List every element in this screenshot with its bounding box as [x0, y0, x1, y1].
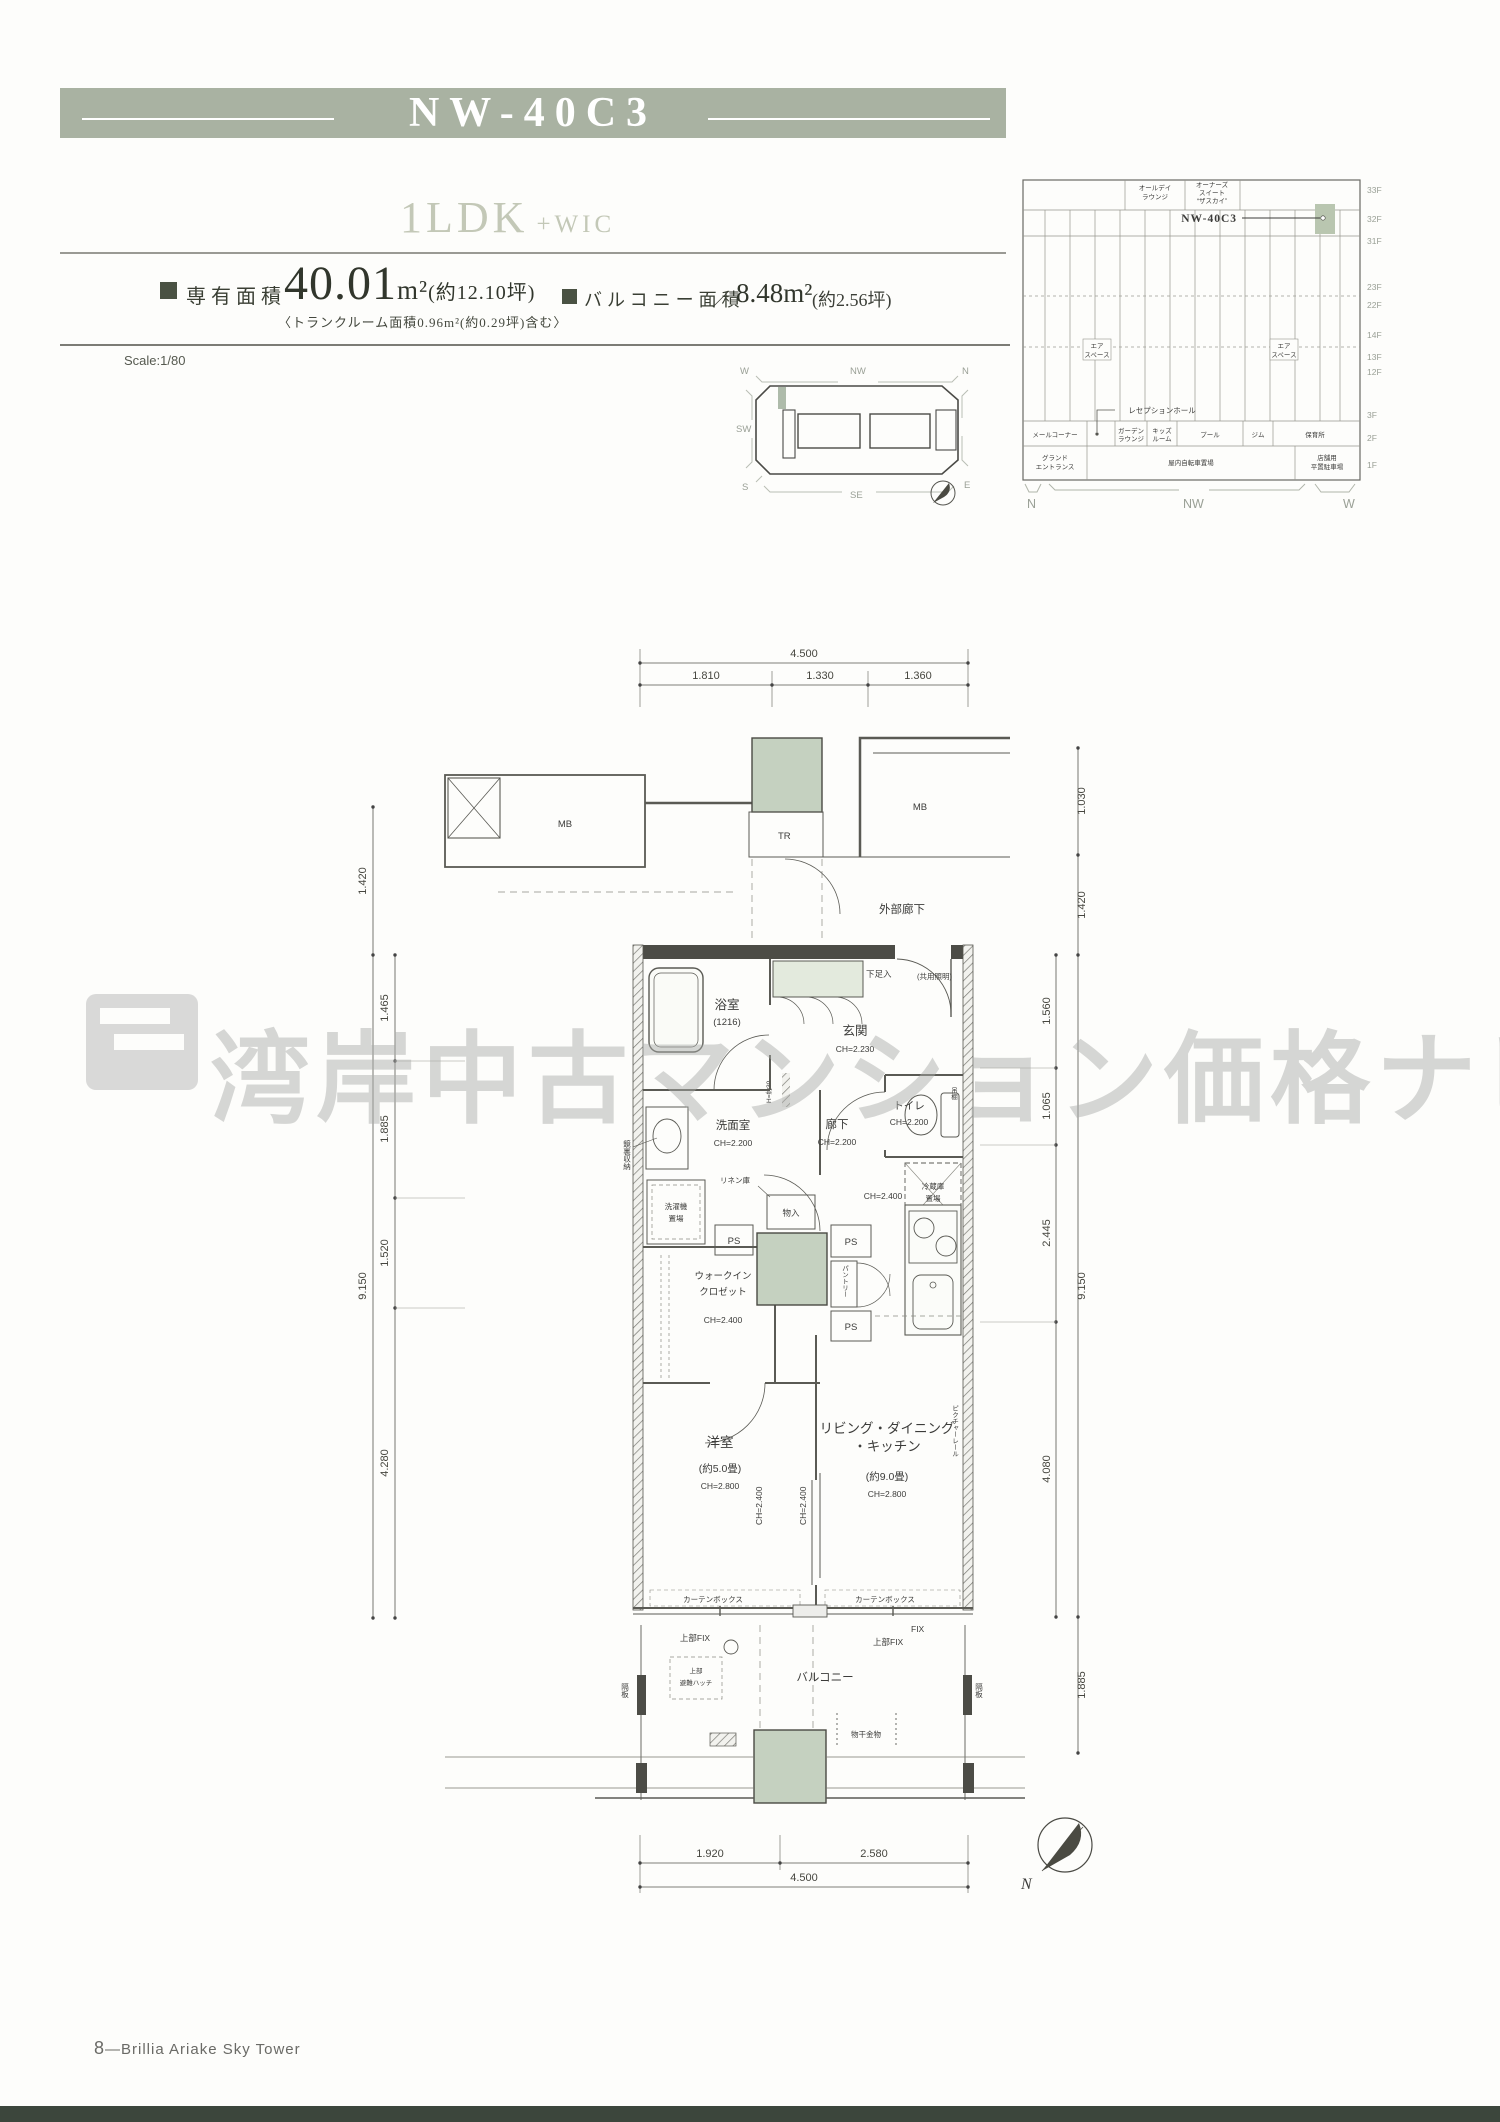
shoe-label: 下足入: [866, 969, 892, 979]
svg-text:オールデイ: オールデイ: [1139, 183, 1172, 192]
divider-spec: [60, 344, 1010, 346]
mirror-storage-label: 鏡裏収納: [622, 1139, 631, 1172]
tr-label: TR: [778, 831, 791, 842]
svg-text:1F: 1F: [1367, 460, 1377, 470]
svg-text:保育所: 保育所: [1305, 430, 1325, 439]
svg-text:3F: 3F: [1367, 410, 1377, 420]
svg-text:E: E: [964, 480, 970, 491]
svg-text:平置駐車場: 平置駐車場: [1311, 462, 1344, 471]
keyplan-compass: [931, 481, 955, 505]
unit-banner: NW-40C3: [60, 88, 1006, 138]
svg-text:9.150: 9.150: [1076, 1272, 1088, 1300]
svg-text:キッズ: キッズ: [1152, 426, 1172, 435]
plan-dims-left: 1.420 9.150 1.465 1.885 1.520 4.280: [357, 805, 465, 1619]
curtain-box-left: カーテンボックス: [683, 1595, 743, 1604]
closet-label: 物入: [782, 1208, 800, 1218]
svg-text:メールコーナー: メールコーナー: [1032, 431, 1077, 439]
shaft-mid: [757, 1233, 827, 1305]
svg-text:S: S: [742, 482, 748, 493]
page-number: 8: [94, 2038, 105, 2058]
partition-left: 隔板: [620, 1683, 629, 1700]
keyplan-unit-marker: [778, 387, 786, 409]
footer-dash: —: [105, 2041, 121, 2058]
svg-text:ラウンジ: ラウンジ: [1142, 193, 1169, 201]
ldk-ch: CH=2.800: [868, 1489, 907, 1499]
partition-right: 隔板: [974, 1683, 983, 1700]
keyplan-core-a: [798, 414, 860, 448]
svg-text:1.810: 1.810: [692, 670, 720, 682]
watermark-text: 湾岸中古マンション価格ナビ: [210, 998, 1500, 1143]
wic-label2: クロゼット: [699, 1286, 747, 1298]
keyplan-core-right: [936, 410, 956, 450]
shaft-balcony: [754, 1730, 826, 1803]
plan-corridor: MB TR MB 外部廊下: [445, 738, 1010, 943]
svg-text:22F: 22F: [1367, 300, 1382, 310]
building-elevation: NW-40C3 オールデイ ラウンジ オーナーズ スイート “ザスカイ” エア …: [1015, 172, 1415, 517]
fix-upper-right: 上部FIX: [873, 1637, 904, 1647]
fix-upper-left: 上部FIX: [680, 1633, 711, 1643]
svg-text:23F: 23F: [1367, 282, 1382, 292]
area-value: 40.01m²(約12.10坪): [284, 256, 535, 311]
balcony-separator: ／: [712, 286, 730, 312]
svg-text:13F: 13F: [1367, 352, 1382, 362]
svg-text:1.420: 1.420: [357, 867, 369, 895]
svg-text:W: W: [740, 366, 749, 377]
svg-text:31F: 31F: [1367, 236, 1382, 246]
trunk-note: 〈トランクルーム面積0.96m²(約0.29坪)含む〉: [278, 312, 567, 331]
keyplan-core-b: [870, 414, 930, 448]
svg-text:4.080: 4.080: [1041, 1455, 1053, 1483]
area-bullet: [160, 282, 177, 299]
svg-text:14F: 14F: [1367, 330, 1382, 340]
ch2400-vert-1: CH=2.400: [754, 1486, 764, 1525]
bedroom-ch: CH=2.800: [701, 1481, 740, 1491]
svg-text:2.580: 2.580: [860, 1848, 888, 1860]
wic-label1: ウォークイン: [694, 1271, 751, 1282]
bedroom-label: 洋室: [707, 1434, 734, 1450]
compass-north-label: N: [1020, 1876, 1033, 1893]
svg-text:9.150: 9.150: [357, 1272, 369, 1300]
balcony-tsubo: (約2.56坪): [812, 286, 892, 312]
plan-dims-top: 4.500 1.810 1.330 1.360: [638, 648, 969, 707]
svg-text:スペース: スペース: [1271, 351, 1296, 359]
svg-text:33F: 33F: [1367, 185, 1382, 195]
svg-text:4.500: 4.500: [790, 648, 818, 660]
wic-ch: CH=2.400: [704, 1315, 743, 1325]
svg-text:オーナーズ: オーナーズ: [1196, 180, 1229, 189]
svg-text:スペース: スペース: [1084, 351, 1109, 359]
curtain-box-right: カーテンボックス: [855, 1595, 915, 1604]
plan-dims-bottom: 1.920 2.580 4.500: [638, 1835, 969, 1893]
plan-wic-core: ウォークイン クロゼット CH=2.400 物入 PS PS パントリー PS: [643, 1195, 890, 1443]
ch2400-vert-2: CH=2.400: [798, 1486, 808, 1525]
svg-text:エア: エア: [1278, 342, 1292, 350]
laundry-label: 物干金物: [851, 1729, 881, 1739]
fridge-label1: 冷蔵庫: [922, 1181, 945, 1191]
area-label: 専有面積: [186, 280, 286, 309]
svg-text:SW: SW: [736, 424, 751, 435]
washer-label1: 洗濯機: [665, 1201, 688, 1211]
plan-compass: N: [1020, 1818, 1092, 1893]
plan-dims-right: 1.030 1.420 9.150 1.885 1.560 1.065 2.44…: [980, 746, 1088, 1754]
svg-text:2.445: 2.445: [1041, 1219, 1053, 1247]
ps1-label: PS: [728, 1236, 741, 1247]
divider-top: [60, 252, 1006, 254]
ldk-size: (約9.0畳): [866, 1470, 909, 1483]
floor-plan: 4.500 1.810 1.330 1.360 MB TR MB 外部廊下: [265, 635, 1165, 1945]
exterior-corridor-label: 外部廊下: [879, 902, 925, 916]
fix-label: FIX: [911, 1624, 925, 1634]
svg-text:ルーム: ルーム: [1152, 435, 1172, 443]
bottom-bar: [0, 2106, 1500, 2122]
ps2-label: PS: [845, 1237, 858, 1248]
mb-left-label: MB: [558, 819, 572, 830]
kitchen-ch: CH=2.400: [864, 1191, 903, 1201]
svg-text:NW-40C3: NW-40C3: [1181, 213, 1237, 225]
scale-label: Scale:1/80: [124, 353, 185, 368]
mb-right-label: MB: [913, 802, 927, 813]
svg-text:1.360: 1.360: [904, 670, 932, 682]
footer-title: Brillia Ariake Sky Tower: [121, 2041, 301, 2058]
picture-rail-label: ピクチャーレール: [951, 1405, 959, 1457]
svg-text:屋内自転車置場: 屋内自転車置場: [1168, 458, 1214, 467]
svg-text:W: W: [1343, 497, 1355, 511]
svg-text:1.330: 1.330: [806, 670, 834, 682]
key-plan: W NW N SW S SE E: [730, 360, 990, 510]
elevation-dashed-floors: [1023, 296, 1360, 347]
svg-text:SE: SE: [850, 490, 863, 501]
svg-text:1.030: 1.030: [1076, 787, 1088, 815]
unit-code-title: NW-40C3: [60, 89, 1006, 137]
svg-text:32F: 32F: [1367, 214, 1382, 224]
keyplan-core-left: [783, 410, 795, 458]
balcony-bullet: [562, 289, 577, 304]
svg-text:店舗用: 店舗用: [1317, 453, 1337, 462]
svg-text:エントランス: エントランス: [1036, 463, 1075, 471]
plan-kitchen: [875, 1205, 963, 1335]
keyplan-building-outline: [756, 386, 958, 474]
svg-text:スイート: スイート: [1199, 189, 1225, 197]
svg-text:ラウンジ: ラウンジ: [1118, 435, 1145, 443]
bedroom-size: (約5.0畳): [699, 1462, 742, 1475]
svg-text:2F: 2F: [1367, 433, 1377, 443]
fridge-label2: 置場: [926, 1193, 941, 1203]
page-footer: 8—Brillia Ariake Sky Tower: [94, 2038, 301, 2059]
plan-balcony: 上部FIX FIX 上部FIX 隔板 隔板 バルコニー 上部 避難ハッチ 物干金…: [445, 1605, 1025, 1803]
balcony-label: バルコニー: [796, 1671, 853, 1684]
plan-type: 1LDK +WIC: [400, 192, 615, 243]
svg-text:プール: プール: [1200, 431, 1220, 439]
svg-text:N: N: [962, 366, 969, 377]
svg-text:NW: NW: [850, 366, 866, 377]
svg-text:1.920: 1.920: [696, 1848, 724, 1860]
elevation-bottom-braces: [1025, 484, 1355, 492]
svg-text:N: N: [1027, 497, 1036, 511]
plan-type-main: 1LDK: [400, 193, 528, 242]
svg-text:エア: エア: [1091, 342, 1105, 350]
balcony-value: 8.48m²: [736, 278, 812, 309]
watermark-logo: [86, 986, 198, 1098]
plan-type-suffix: +WIC: [536, 211, 615, 238]
pantry-label: パントリー: [841, 1265, 849, 1298]
svg-text:“ザスカイ”: “ザスカイ”: [1197, 197, 1227, 205]
area-unit: m²: [397, 275, 428, 305]
svg-text:レセプションホール: レセプションホール: [1128, 406, 1196, 415]
svg-text:4.280: 4.280: [379, 1449, 391, 1477]
shaft-top: [752, 738, 822, 812]
ldk-label1: リビング・ダイニング: [820, 1421, 955, 1436]
svg-text:1.520: 1.520: [379, 1239, 391, 1267]
ps3-label: PS: [845, 1322, 858, 1333]
svg-text:ジム: ジム: [1252, 431, 1266, 439]
svg-text:12F: 12F: [1367, 367, 1382, 377]
elevation-unit-callout: NW-40C3: [1181, 213, 1325, 225]
hatch-label2: 避難ハッチ: [680, 1678, 713, 1687]
svg-text:1.420: 1.420: [1076, 891, 1088, 919]
svg-text:NW: NW: [1183, 497, 1204, 511]
common-light-label: (共用照明): [917, 972, 952, 981]
ldk-label2: ・キッチン: [853, 1439, 921, 1454]
svg-text:ガーデン: ガーデン: [1118, 426, 1144, 435]
elevation-floor-labels: 33F 32F 31F 23F 22F 14F 13F 12F 3F 2F 1F: [1367, 185, 1382, 470]
svg-text:4.500: 4.500: [790, 1872, 818, 1884]
svg-text:グランド: グランド: [1042, 453, 1068, 462]
hatch-label1: 上部: [690, 1666, 704, 1675]
linen-label: リネン庫: [720, 1175, 750, 1185]
washer-label2: 置場: [669, 1213, 684, 1223]
svg-text:1.885: 1.885: [1076, 1671, 1088, 1699]
area-tsubo: (約12.10坪): [428, 282, 535, 304]
plan-rooms: 洋室 (約5.0畳) CH=2.800 リビング・ダイニング ・キッチン (約9…: [650, 1335, 960, 1608]
elevation-direction-labels: N NW W: [1027, 497, 1355, 511]
